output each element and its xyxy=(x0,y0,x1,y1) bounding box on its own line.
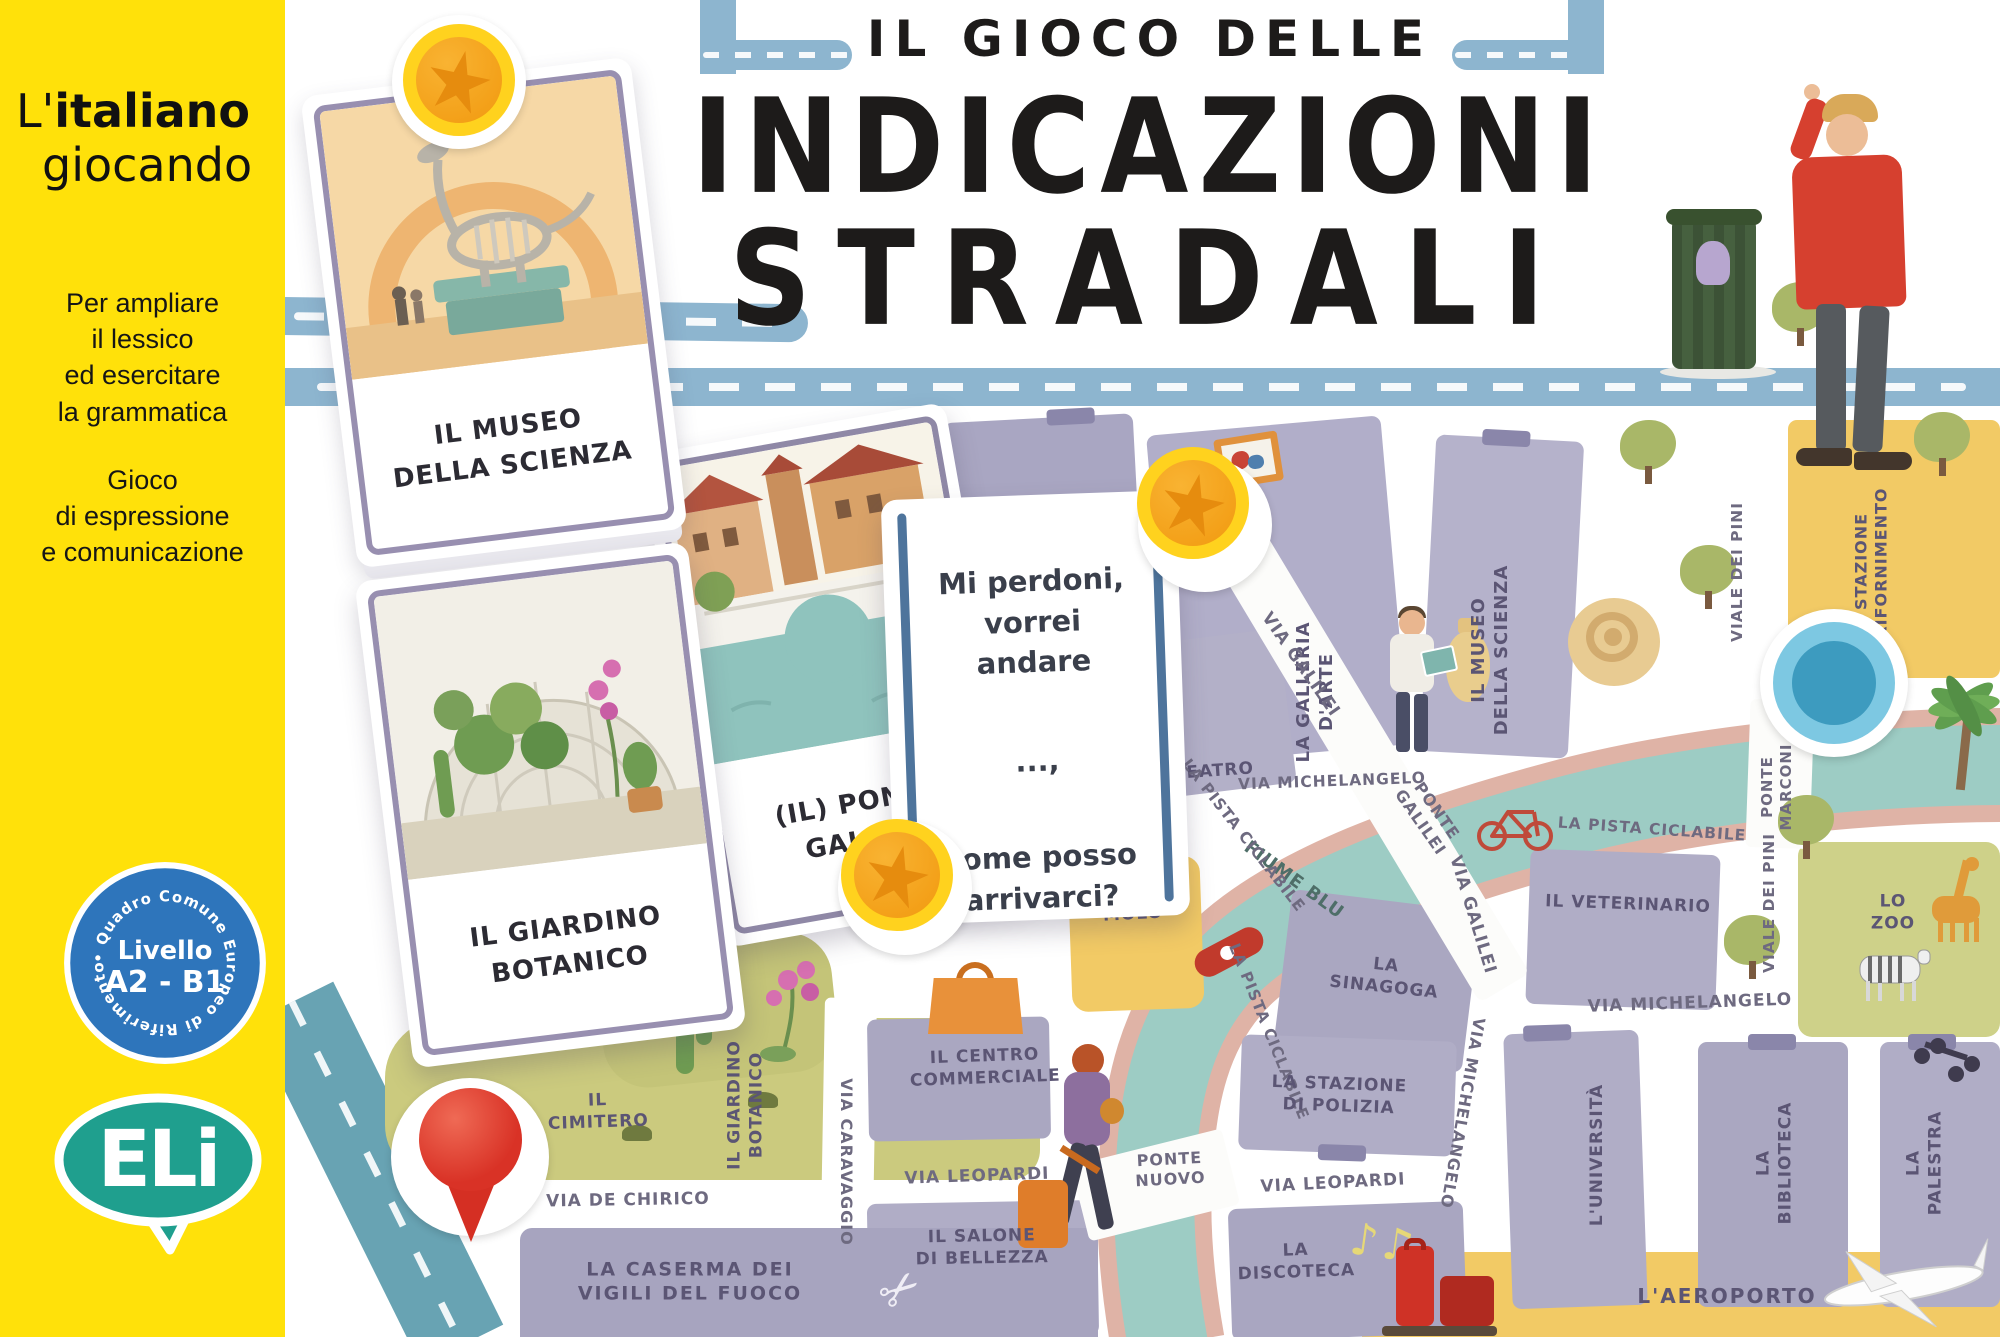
man-figure xyxy=(1752,78,1952,478)
map-label-discoteca: LADISCOTECA xyxy=(1237,1238,1356,1286)
map-label-via-de-chirico: VIA DE CHIRICO xyxy=(546,1189,710,1214)
map-label-centro-commerciale: IL CENTROCOMMERCIALE xyxy=(909,1044,1061,1093)
tagline-1: Per ampliare il lessico ed esercitare la… xyxy=(0,285,285,430)
ammonite-icon xyxy=(1568,598,1660,686)
game-box-cover: ✂ ♪♫ xyxy=(0,0,2000,1337)
card-garden: IL GIARDINOBOTANICO xyxy=(354,541,746,1068)
map-label-caserma: LA CASERMA DEIVIGILI DEL FUOCO xyxy=(578,1258,802,1307)
coin-token-2 xyxy=(1137,447,1249,559)
giraffe-icon xyxy=(1912,852,2000,957)
badge-level-value: A2 - B1 xyxy=(105,965,226,1000)
greenhouse-illustration xyxy=(373,560,706,880)
map-label-biblioteca: LABIBLIOTECA xyxy=(1753,1102,1797,1225)
map-label-zoo: LOZOO xyxy=(1871,891,1915,935)
sidebar: L'italiano giocando Per ampliare il less… xyxy=(0,0,285,1337)
map-label-aeroporto: L'AEROPORTO xyxy=(1637,1284,1816,1310)
map-label-cimitero: ILCIMITERO xyxy=(547,1089,649,1136)
map-label-giardino-botanico: IL GIARDINOBOTANICO xyxy=(724,1040,768,1170)
map-reader-figure xyxy=(1382,606,1472,768)
map-label-stazione-polizia: LA STAZIONEDI POLIZIA xyxy=(1271,1072,1408,1120)
luggage-icon xyxy=(1382,1238,1502,1337)
cefr-badge: • Quadro Comune Europeo di Riferimento L… xyxy=(62,860,268,1066)
map-label-viale-dei-pini-2: VIALE DEI PINI xyxy=(1760,833,1780,973)
shopping-bag-icon xyxy=(928,962,1023,1034)
map-pin xyxy=(391,1078,551,1253)
star-icon xyxy=(859,838,935,914)
map-label-palestra: LAPALESTRA xyxy=(1903,1111,1947,1216)
game-kicker: IL GIOCO DELLE xyxy=(650,10,1650,68)
bicycle-icon xyxy=(1472,792,1560,854)
brand-line2: giocando xyxy=(16,138,252,192)
brand-bold: italiano xyxy=(54,84,250,138)
coin-token-3 xyxy=(841,819,953,931)
map-label-universita: L'UNIVERSITÀ xyxy=(1587,1084,1609,1226)
eli-logo: ELi xyxy=(52,1092,272,1272)
brand-title: L'italiano giocando xyxy=(16,84,252,193)
brand-prefix: L' xyxy=(16,84,54,138)
card-garden-label: IL GIARDINOBOTANICO xyxy=(408,843,728,1049)
map-label-ponte-nuovo: PONTENUOVO xyxy=(1134,1148,1206,1193)
game-title-line2: STRADALI xyxy=(650,202,1650,355)
bin-critter xyxy=(1696,241,1730,285)
building-universita xyxy=(1503,1030,1648,1310)
eli-logo-text: ELi xyxy=(98,1115,219,1205)
zebra-icon xyxy=(1848,946,1943,1010)
building-veterinario xyxy=(1525,849,1720,1011)
badge-level-label: Livello xyxy=(118,936,213,966)
dumbbell-icon xyxy=(1908,1030,1990,1092)
map-label-via-caravaggio: VIA CARAVAGGIO xyxy=(836,1078,856,1246)
star-icon xyxy=(421,43,497,119)
card-museum-label: IL MUSEODELLA SCIENZA xyxy=(352,343,669,549)
blue-token xyxy=(1760,609,1908,757)
coin-token-1 xyxy=(403,24,515,136)
game-title-line1: INDICAZIONI xyxy=(650,70,1650,223)
map-label-viale-dei-pini-1: VIALE DEI PINI xyxy=(1728,502,1748,642)
star-icon xyxy=(1155,466,1231,542)
tagline-2: Gioco di espressione e comunicazione xyxy=(0,462,285,571)
palm-icon xyxy=(1908,660,2000,805)
map-label-museo-scienza: IL MUSEODELLA SCIENZA xyxy=(1467,565,1513,736)
map-label-salone-bellezza: IL SALONEDI BELLEZZA xyxy=(915,1225,1049,1271)
